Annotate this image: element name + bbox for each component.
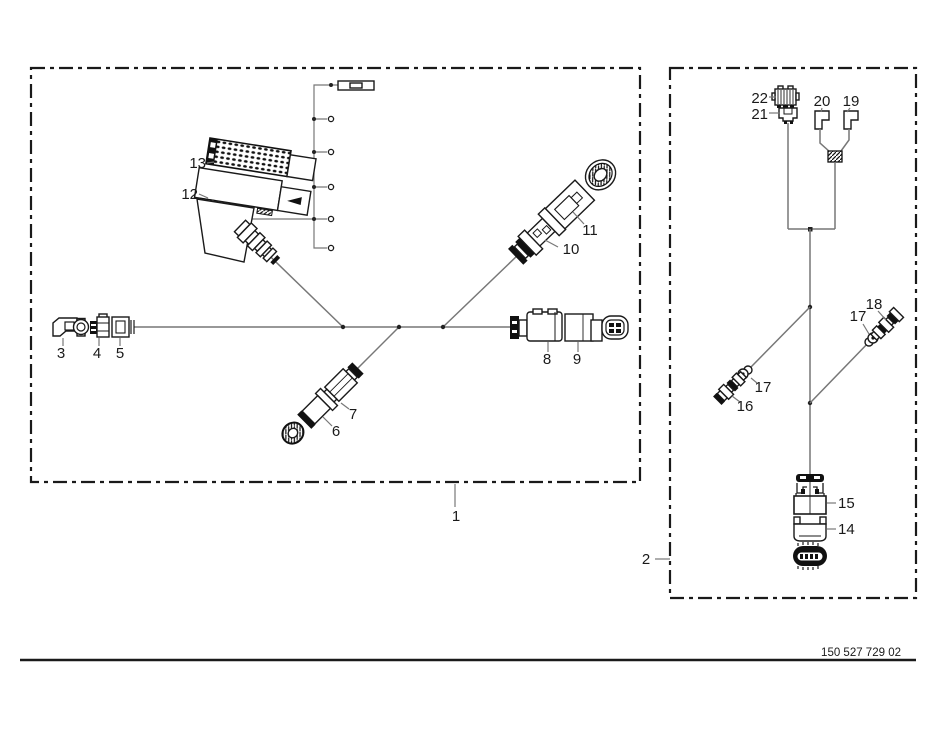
callout-6-label: 6 — [332, 423, 340, 440]
callout-20-label: 20 — [814, 93, 831, 110]
callout-21-label: 21 — [751, 106, 768, 123]
callout-8-label: 8 — [543, 351, 551, 368]
drawing-number: 150 527 729 02 — [821, 647, 901, 659]
callout-14-label: 14 — [838, 521, 855, 538]
callout-19: 19 — [843, 93, 860, 112]
callout-2-label: 2 — [642, 551, 650, 568]
callout-15-label: 15 — [838, 495, 855, 512]
part-22-connector — [772, 86, 799, 108]
background — [0, 0, 946, 743]
mating-face-icon — [602, 316, 628, 339]
callout-17-left: 17 — [751, 378, 771, 396]
part-5-connector — [112, 317, 134, 337]
callout-5-label: 5 — [116, 345, 124, 362]
callout-17-right-label: 17 — [850, 308, 867, 325]
callout-4-label: 4 — [93, 345, 101, 362]
callout-13-label: 13 — [189, 155, 206, 172]
callout-10-label: 10 — [563, 241, 580, 258]
wiring-harness-diagram: 1 2 — [0, 0, 946, 743]
callout-7-label: 7 — [349, 406, 357, 423]
callout-19-label: 19 — [843, 93, 860, 110]
splice-junction — [828, 151, 842, 162]
callout-18-label: 18 — [866, 296, 883, 313]
callout-3-label: 3 — [57, 345, 65, 362]
parts-diagram-page: 1 2 — [0, 0, 946, 743]
callout-17-left-label: 17 — [755, 379, 772, 396]
callout-9-label: 9 — [573, 351, 581, 368]
callout-22-label: 22 — [751, 90, 768, 107]
callout-16-label: 16 — [737, 398, 754, 415]
callout-20: 20 — [814, 93, 831, 112]
callout-12-label: 12 — [181, 186, 198, 203]
callout-11-label: 11 — [582, 222, 598, 239]
callout-1-label: 1 — [452, 508, 460, 525]
